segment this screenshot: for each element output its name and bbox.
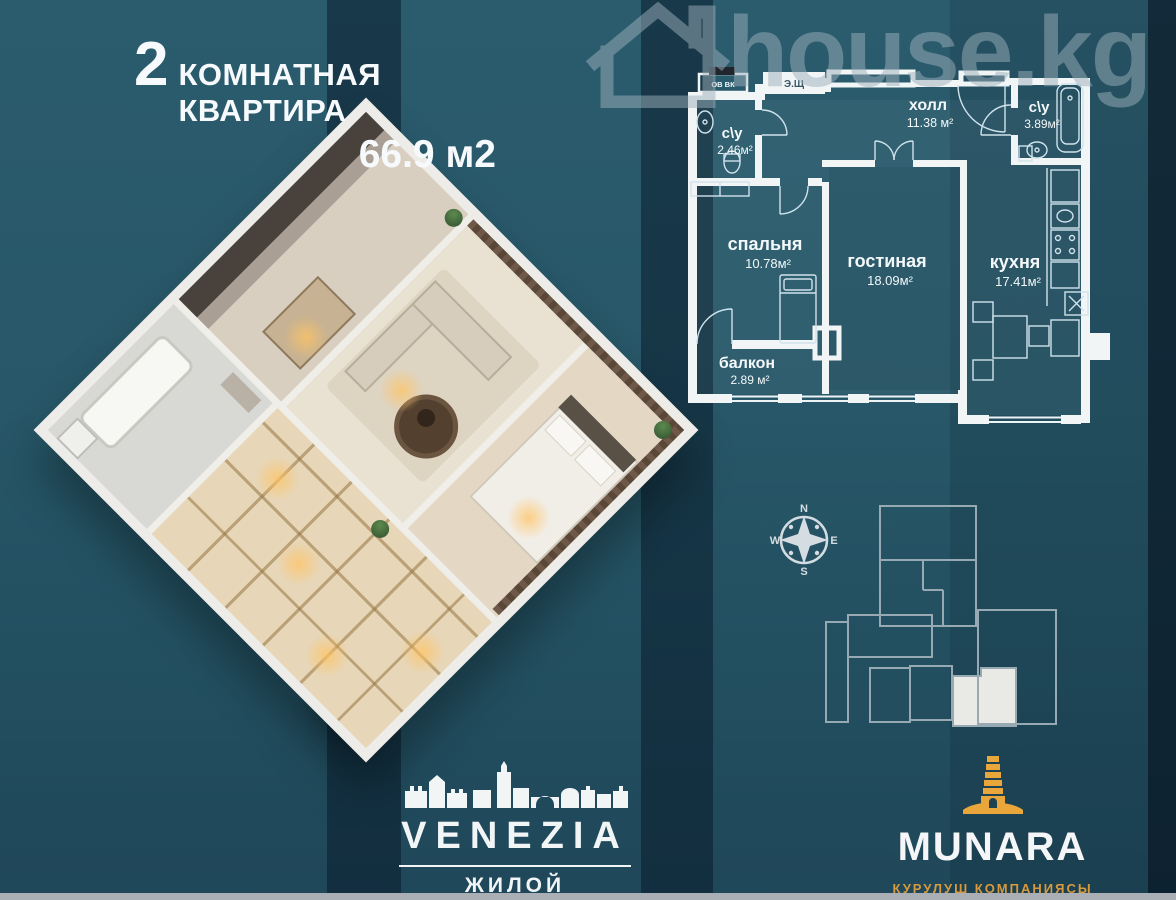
room-area: 17.41м² — [995, 274, 1041, 289]
total-area: 66.9 м2 — [134, 133, 496, 177]
plan-shaft — [709, 67, 735, 75]
venezia-logo: VENEZIA ЖИЛОЙ КОМПЛЕКС — [395, 760, 635, 900]
room-count: 2 — [134, 34, 168, 96]
background-stripe — [1148, 0, 1176, 900]
room-name: спальня — [728, 234, 803, 254]
munara-logo: MUNARA КУРУЛУШ КОМПАНИЯСЫ — [890, 744, 1095, 896]
tower-door — [989, 798, 997, 808]
venice-skyline-icon — [403, 760, 628, 808]
room-area: 18.09м² — [867, 273, 913, 288]
poster: 2 КОМНАТНАЯ КВАРТИРА 66.9 м2 — [0, 0, 1176, 900]
utility-label: Э.Щ — [784, 79, 805, 90]
building-outline — [826, 506, 1056, 726]
floor-plan-2d: с\у 2.46м² холл 11.38 м² с\у 3.89м² спал… — [675, 60, 1120, 480]
room-name: гостиная — [847, 251, 926, 271]
room-area: 11.38 м² — [907, 116, 954, 130]
title-label: КОМНАТНАЯ КВАРТИРА — [178, 57, 496, 129]
builder-name: MUNARA — [890, 825, 1095, 870]
compass-w: W — [770, 535, 781, 547]
room-name: с\у — [722, 125, 744, 142]
utility-label: ОВ ВК — [711, 80, 735, 89]
room-area: 3.89м² — [1024, 117, 1060, 131]
complex-name: VENEZIA — [395, 815, 635, 858]
divider — [399, 865, 631, 867]
room-area: 2.46м² — [717, 143, 753, 157]
minaret-tower-icon — [961, 744, 1025, 816]
bottom-bar — [0, 893, 1176, 900]
room-name: холл — [909, 97, 947, 114]
room-name: кухня — [990, 252, 1041, 272]
floor-plan-3d — [34, 98, 699, 763]
room-name: с\у — [1029, 99, 1051, 116]
room-area: 10.78м² — [745, 256, 791, 271]
apartment-title: 2 КОМНАТНАЯ КВАРТИРА 66.9 м2 — [134, 34, 496, 177]
room-area: 2.89 м² — [731, 373, 770, 387]
compass-n: N — [800, 503, 808, 515]
building-locator — [818, 498, 1058, 733]
room-name: балкон — [719, 355, 775, 372]
compass-s: S — [800, 566, 807, 577]
